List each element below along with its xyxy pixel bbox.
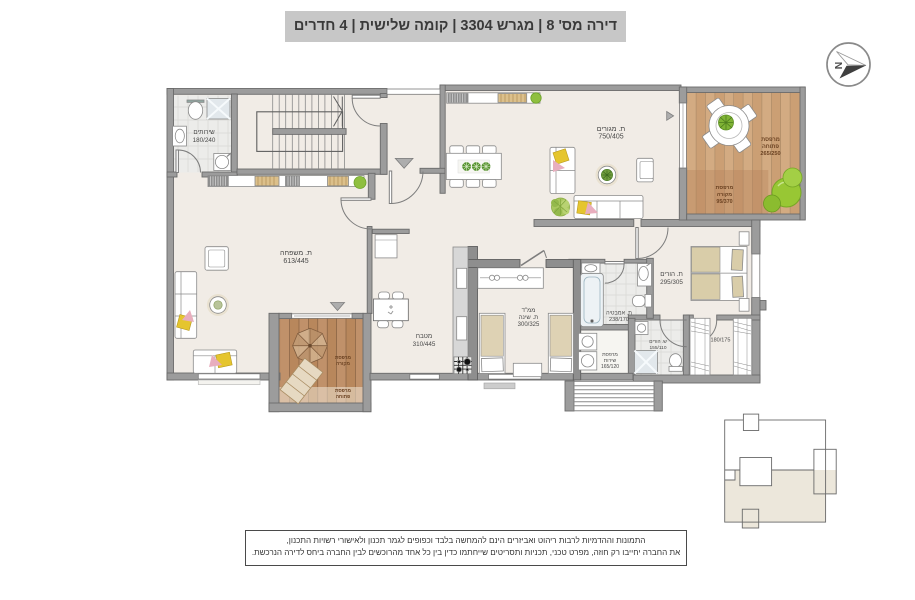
svg-text:300/325: 300/325	[518, 322, 540, 328]
svg-text:ת. אמבטיה: ת. אמבטיה	[606, 311, 632, 317]
svg-text:238/170: 238/170	[609, 317, 629, 323]
svg-text:310/445: 310/445	[413, 341, 436, 348]
svg-text:מרפסת: מרפסת	[716, 185, 734, 191]
svg-text:מקורה: מקורה	[336, 362, 350, 367]
svg-text:180/240: 180/240	[193, 137, 216, 144]
svg-text:מרפסת: מרפסת	[335, 356, 351, 361]
svg-text:ש. הורים: ש. הורים	[649, 340, 667, 345]
svg-text:מרפסת: מרפסת	[761, 137, 780, 143]
svg-text:פתוחה: פתוחה	[762, 144, 779, 150]
svg-text:95/370: 95/370	[716, 199, 732, 205]
svg-text:ת. משפחה: ת. משפחה	[280, 250, 312, 257]
svg-text:מרפסת: מרפסת	[335, 389, 351, 394]
svg-text:750/405: 750/405	[598, 134, 623, 141]
svg-text:155/110: 155/110	[650, 345, 667, 351]
svg-text:שירותים: שירותים	[193, 129, 215, 136]
svg-text:ממ"ד: ממ"ד	[522, 308, 536, 314]
svg-text:ת. מגורים: ת. מגורים	[597, 126, 626, 133]
svg-text:ת. הורים: ת. הורים	[660, 271, 683, 278]
svg-text:613/445: 613/445	[283, 258, 308, 265]
svg-text:265/250: 265/250	[760, 151, 780, 157]
svg-text:מקורה: מקורה	[717, 192, 732, 198]
svg-text:165/120: 165/120	[601, 364, 619, 370]
svg-text:מטבח: מטבח	[416, 333, 432, 340]
svg-text:ת. שינה: ת. שינה	[519, 315, 539, 321]
svg-text:180/175: 180/175	[711, 338, 731, 344]
svg-text:פתוחה: פתוחה	[336, 395, 351, 400]
svg-text:295/305: 295/305	[660, 279, 683, 286]
svg-text:N: N	[832, 62, 844, 70]
